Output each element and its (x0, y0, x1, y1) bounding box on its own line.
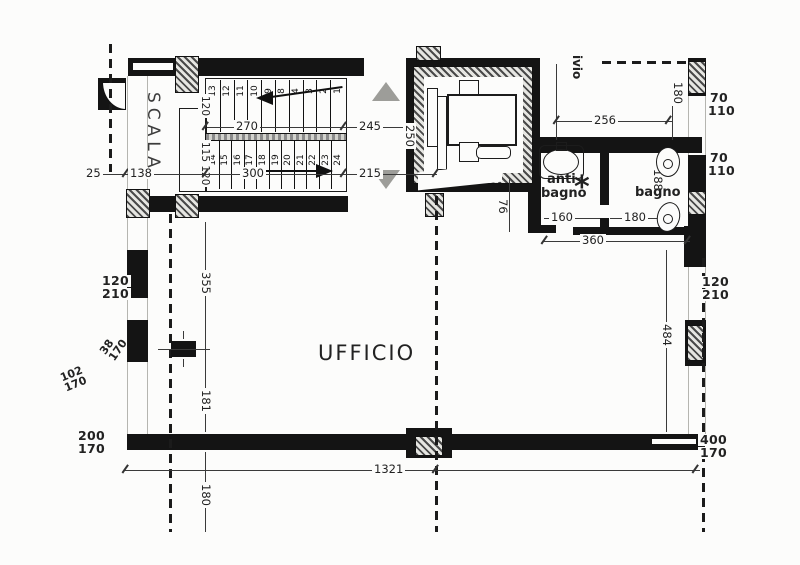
lift-motor-top (459, 80, 479, 95)
dim-102-170: 102 170 (59, 364, 89, 393)
stair-tread-number: 11 (236, 85, 246, 96)
sink-tap (556, 142, 567, 151)
dim-180-bagno: 180 (622, 211, 648, 223)
axis-dashed-left (169, 214, 172, 532)
dim-256: 256 (592, 114, 618, 126)
dim-38-170: 38 170 (98, 331, 129, 362)
stair-tread-8: 8 (275, 80, 289, 132)
wall-left-block-b (127, 320, 148, 362)
dim-180-door: 180 (671, 80, 684, 106)
lift-piston (476, 146, 511, 159)
corridor-up-arrow (372, 82, 400, 101)
floor-plan: 13121110984321 1415161718192021222324 12… (0, 0, 800, 565)
axis-dashed-top-right (602, 61, 688, 64)
dim-110-mid: 110 (706, 165, 737, 177)
room-label-scala: SCALA (143, 92, 163, 173)
stair-tread-number: 19 (271, 154, 281, 165)
pillar-right-mid (689, 192, 705, 214)
dim-160: 160 (549, 211, 575, 223)
stair-tread-24: 24 (331, 141, 344, 189)
dim-210-left: 210 (100, 288, 131, 300)
axis-dashed-left-top (109, 44, 112, 172)
stair-tread-12: 12 (220, 80, 234, 132)
stair-tread-number: 17 (245, 154, 255, 165)
stair-tread-19: 19 (269, 141, 282, 189)
wall-partition-bagno (600, 153, 609, 205)
window-slot-bottom-right (652, 439, 696, 444)
dim-lower-flight-width: 115 120 (198, 140, 211, 187)
dim-tick (692, 464, 699, 473)
dim-484: 484 (660, 322, 673, 348)
stair-tread-number: 18 (258, 154, 268, 165)
dim-250: 250 (403, 123, 416, 149)
dim-76: 76 (496, 197, 509, 216)
pillar-top-left (176, 57, 198, 92)
dim-tick (541, 235, 548, 244)
dim-110-top: 110 (706, 105, 737, 117)
dim-355: 355 (199, 270, 212, 296)
dimline-360 (544, 241, 690, 242)
dim-245: 245 (357, 120, 383, 132)
stair-tread-15: 15 (219, 141, 232, 189)
dim-300: 300 (240, 167, 266, 179)
stair-tread-4: 4 (289, 80, 303, 132)
stair-tread-16: 16 (231, 141, 244, 189)
toilet-top-flush (663, 159, 673, 169)
pillar-lift-top (417, 47, 440, 60)
column-marker-line (158, 349, 210, 350)
toilet-bottom-flush (663, 214, 673, 224)
dimline-1321 (125, 470, 700, 471)
dim-tick (122, 464, 129, 473)
dim-181: 181 (199, 388, 212, 414)
window-slot-top (133, 63, 173, 70)
column-marker-tick-bottom (183, 359, 184, 367)
lift-door-rail-b (437, 96, 447, 170)
stair-tread-number: 20 (283, 154, 293, 165)
dim-upper-flight-width: 120 (198, 94, 211, 118)
pillar-stair-bottom (176, 195, 198, 217)
stair-tread-3: 3 (303, 80, 317, 132)
dimline-256-right (672, 104, 673, 140)
lift-cab (447, 94, 517, 146)
dim-170-bl: 170 (76, 443, 107, 455)
axis-dashed-center (435, 196, 438, 532)
stair-tread-20: 20 (281, 141, 294, 189)
stair-down-arrowhead (316, 164, 333, 178)
stair-tread-number: 15 (220, 154, 230, 165)
room-label-archivio-partial: ivio (570, 55, 584, 79)
pillar-right-low (688, 326, 703, 360)
dim-215: 215 (357, 167, 383, 179)
stair-tread-number: 24 (333, 154, 343, 165)
dim-210-right: 210 (700, 289, 731, 301)
stair-tread-21: 21 (294, 141, 307, 189)
dim-170-br: 170 (698, 447, 729, 459)
pillar-right-top (689, 62, 705, 93)
pillar-bottom (416, 437, 442, 455)
stair-tread-18: 18 (256, 141, 269, 189)
pillar-left-mid (127, 190, 149, 217)
dim-tick (665, 115, 672, 124)
wall-anti-bagno-foot (528, 225, 556, 233)
dim-270: 270 (234, 120, 260, 132)
stair-tread-number: 16 (233, 154, 243, 165)
stair-mid-rail (205, 133, 347, 141)
stair-tread-9: 9 (261, 80, 275, 132)
dimline-256-left (556, 64, 557, 140)
stair-tread-number: 21 (296, 154, 306, 165)
dim-1321: 1321 (372, 463, 405, 475)
room-label-ufficio: UFFICIO (318, 341, 415, 365)
dim-25: 25 (84, 167, 103, 179)
wall-right-mid (688, 155, 706, 226)
dim-180-bottom: 180 (199, 482, 212, 508)
sink-basin (543, 149, 579, 175)
dim-360: 360 (580, 234, 606, 246)
stair-tread-17: 17 (244, 141, 257, 189)
stair-tread-number: 12 (222, 85, 232, 96)
room-label-bagno: bagno (635, 185, 681, 200)
column-marker-tick-top (183, 331, 184, 339)
